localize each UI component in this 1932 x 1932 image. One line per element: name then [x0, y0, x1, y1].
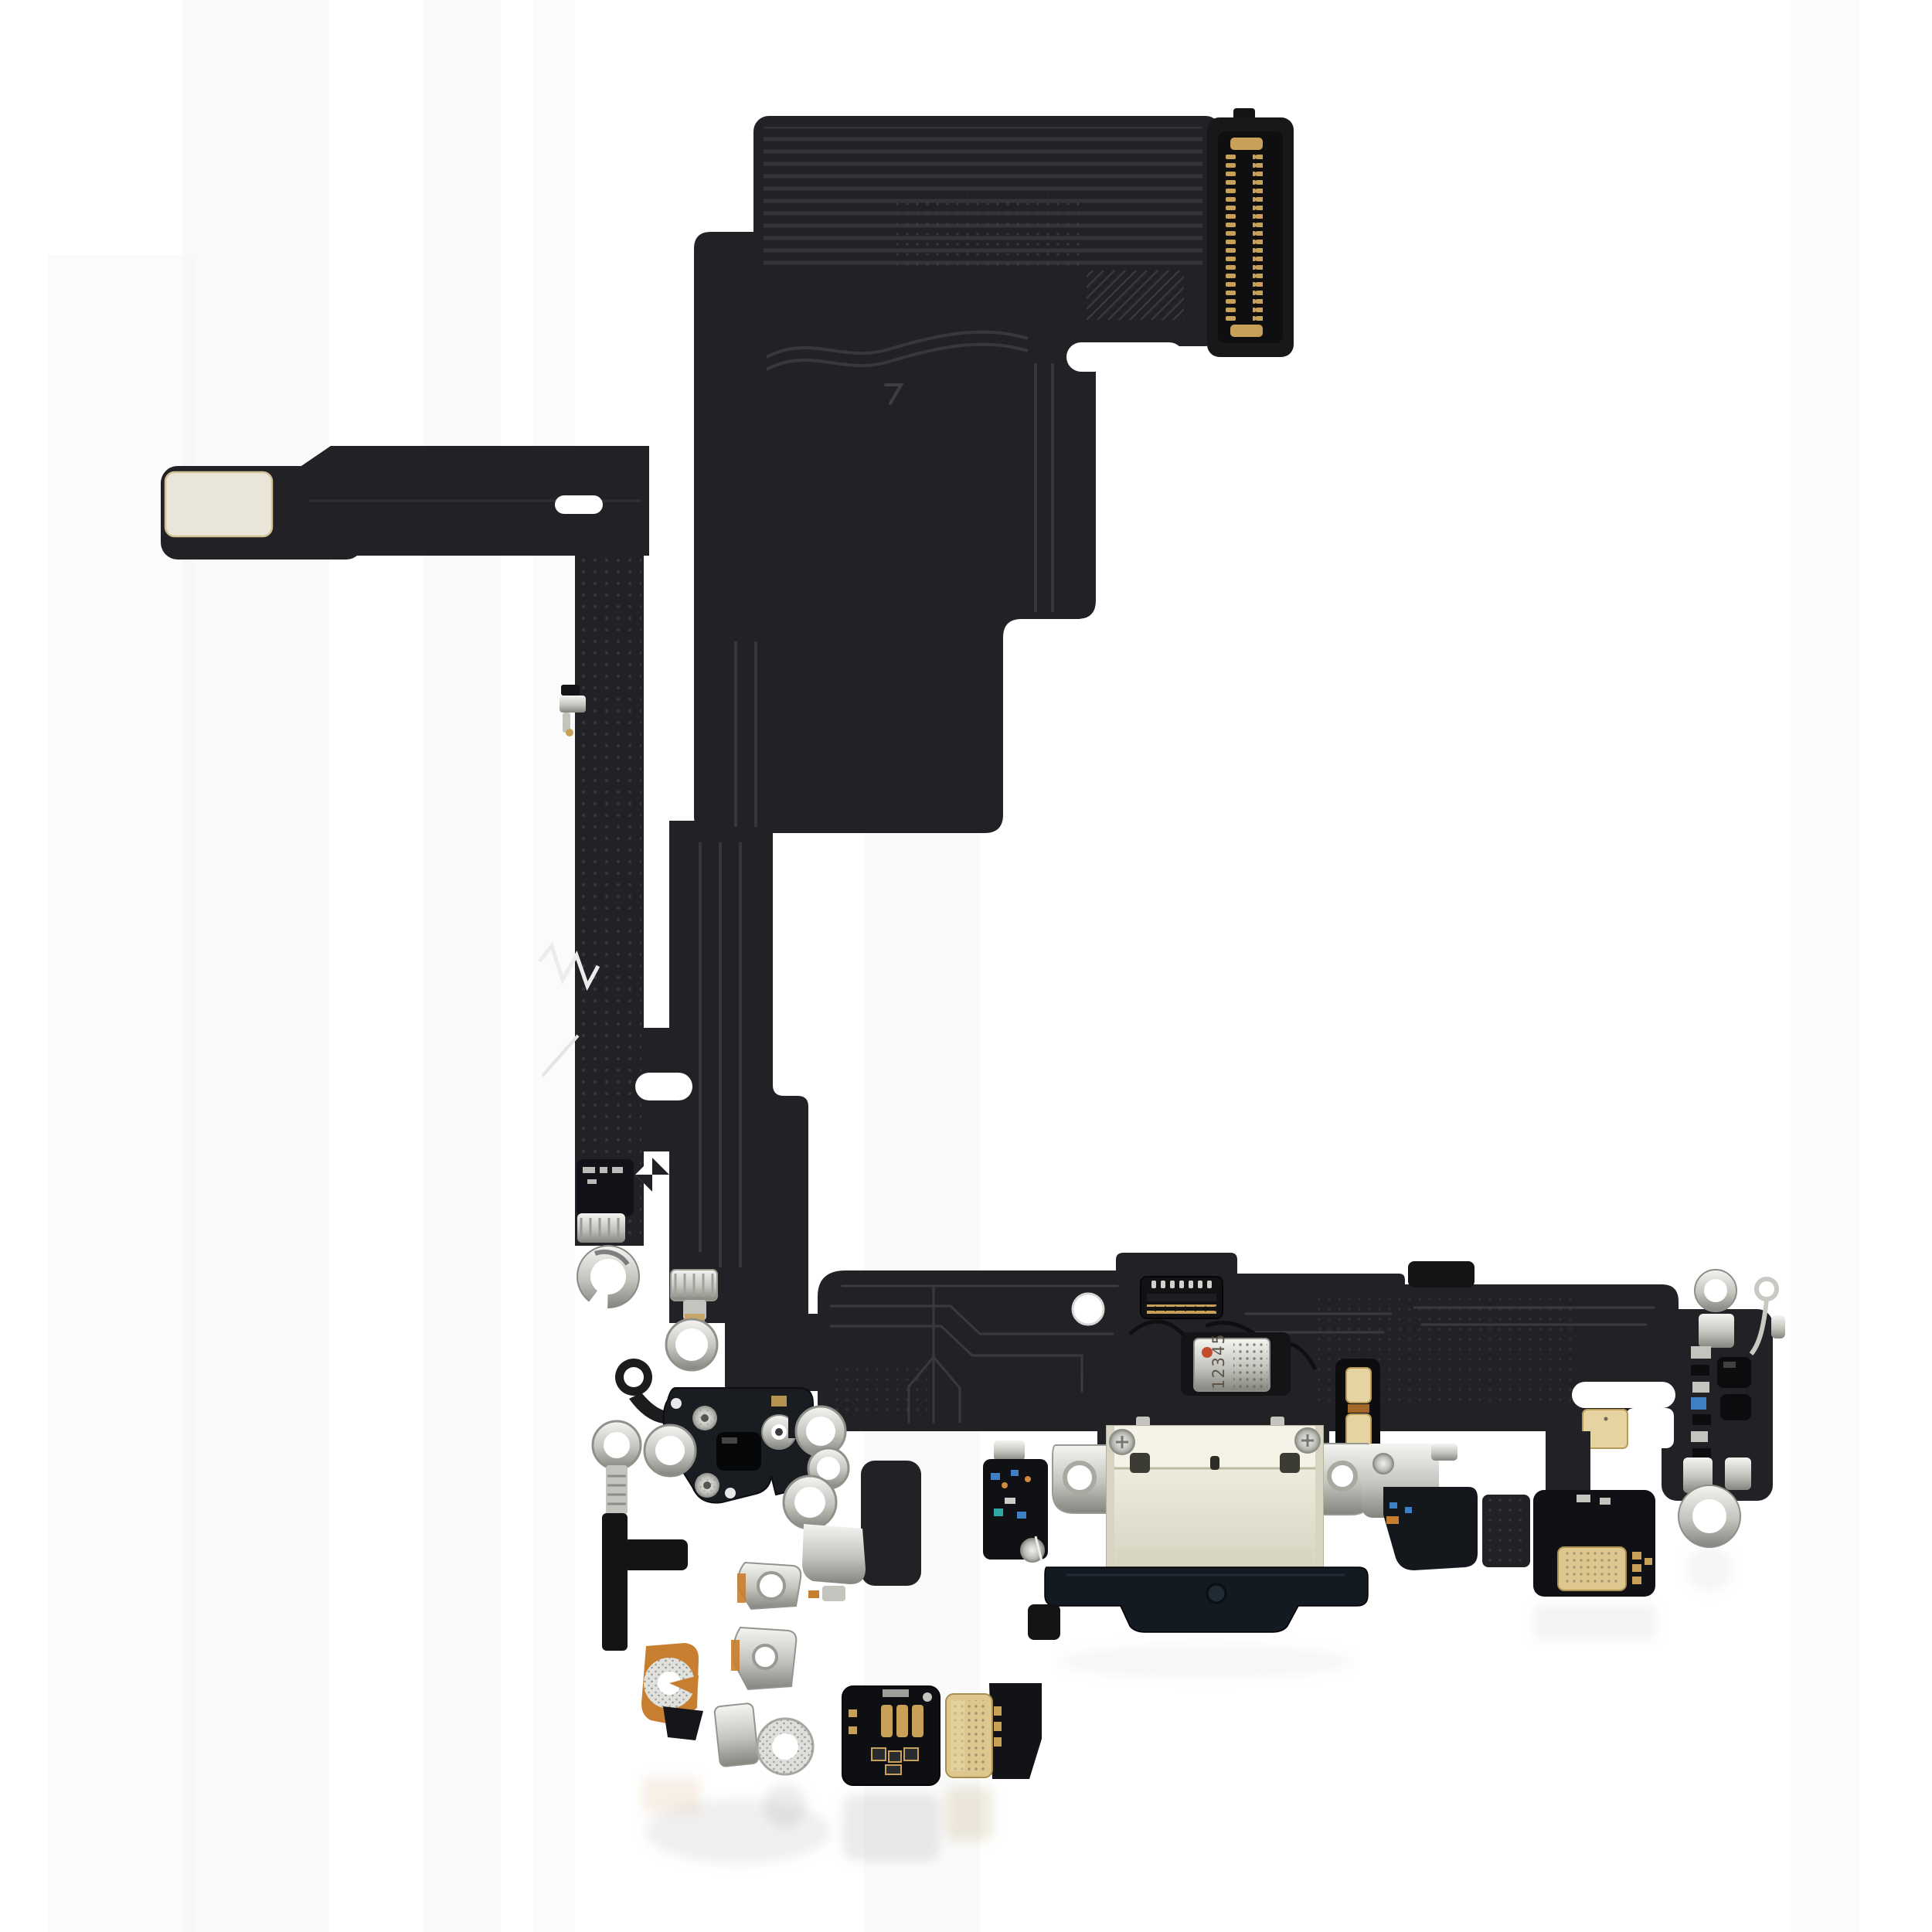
module-top-bracket: [1699, 1314, 1734, 1348]
module-bottom-tab-right: [1725, 1458, 1751, 1490]
band-dot-texture: [896, 195, 1087, 267]
band-slot-cutout: [1066, 342, 1184, 372]
column-slot-cutout: [635, 1073, 692, 1100]
arm-slot-cutout: [555, 495, 603, 514]
band-hatch-texture: [1087, 270, 1184, 320]
shield-screw-right: [1295, 1428, 1320, 1453]
contact-module: [842, 1686, 940, 1785]
cluster-dark-piece: [1028, 1604, 1060, 1640]
shield-center-pin: [1210, 1456, 1219, 1470]
shield-mark-right: [1280, 1453, 1300, 1473]
right-wing-screw-hole: [1329, 1463, 1355, 1489]
connector-pin-row-left: [1226, 151, 1236, 325]
mic-marking-text: 12345: [1209, 1333, 1228, 1389]
board-to-board-connector: [1207, 117, 1294, 357]
dotted-texture: [578, 546, 641, 1241]
band-top-tab: [1408, 1261, 1475, 1287]
flex-socket-connector: [1141, 1277, 1223, 1318]
right-mic-ribbon: [1546, 1431, 1590, 1498]
connector-pin-row-right: [1253, 151, 1263, 325]
arm-contact-pad: [165, 472, 272, 536]
connector-gold-cap-top: [1230, 138, 1263, 150]
band-texture-left: [835, 1360, 927, 1414]
microphone-12345: 12345: [1181, 1332, 1291, 1396]
boot-center-detent: [1207, 1584, 1226, 1603]
mic-end-cap: [1270, 1335, 1291, 1393]
bottom-gold-microphone: [946, 1683, 1042, 1779]
band-hole: [1073, 1294, 1104, 1325]
right-edge-tab: [1771, 1315, 1785, 1338]
hole-bracket-a: [737, 1563, 801, 1609]
shield-screw-left: [1110, 1430, 1134, 1454]
lower-dark-plate: [861, 1461, 921, 1586]
connector-gold-cap-bottom: [1230, 325, 1263, 337]
shield-mark-left: [1130, 1453, 1150, 1473]
left-wing-screw-hole: [1065, 1463, 1094, 1492]
mic-dot-matrix: [1233, 1342, 1267, 1388]
gold-contact-pads: [1335, 1359, 1380, 1453]
shield-bottom-lip: [1117, 1549, 1312, 1569]
flex-column-foot: [725, 1314, 818, 1391]
flex-cable-photo: 12345: [0, 0, 1932, 1932]
product-photo-canvas: 12345: [0, 0, 1932, 1932]
